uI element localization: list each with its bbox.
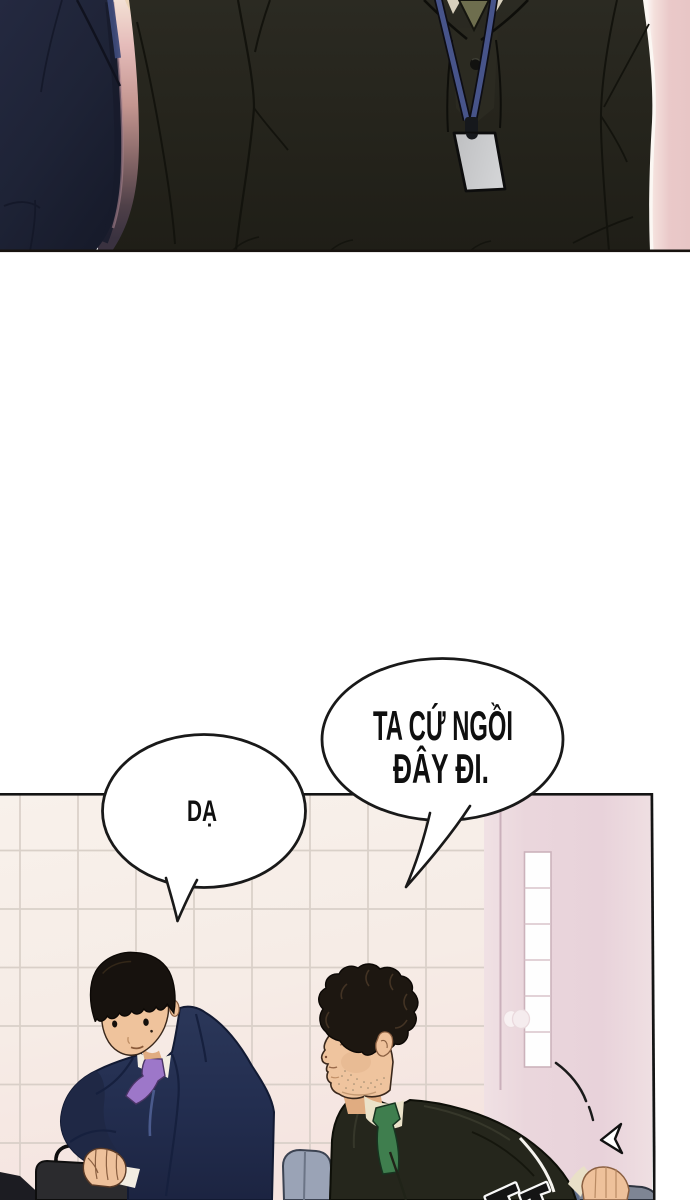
svg-text:ĐÂY ĐI.: ĐÂY ĐI.	[393, 744, 489, 792]
svg-text:TA CỨ NGỒI: TA CỨ NGỒI	[373, 701, 513, 749]
svg-text:DẠ: DẠ	[187, 795, 217, 828]
